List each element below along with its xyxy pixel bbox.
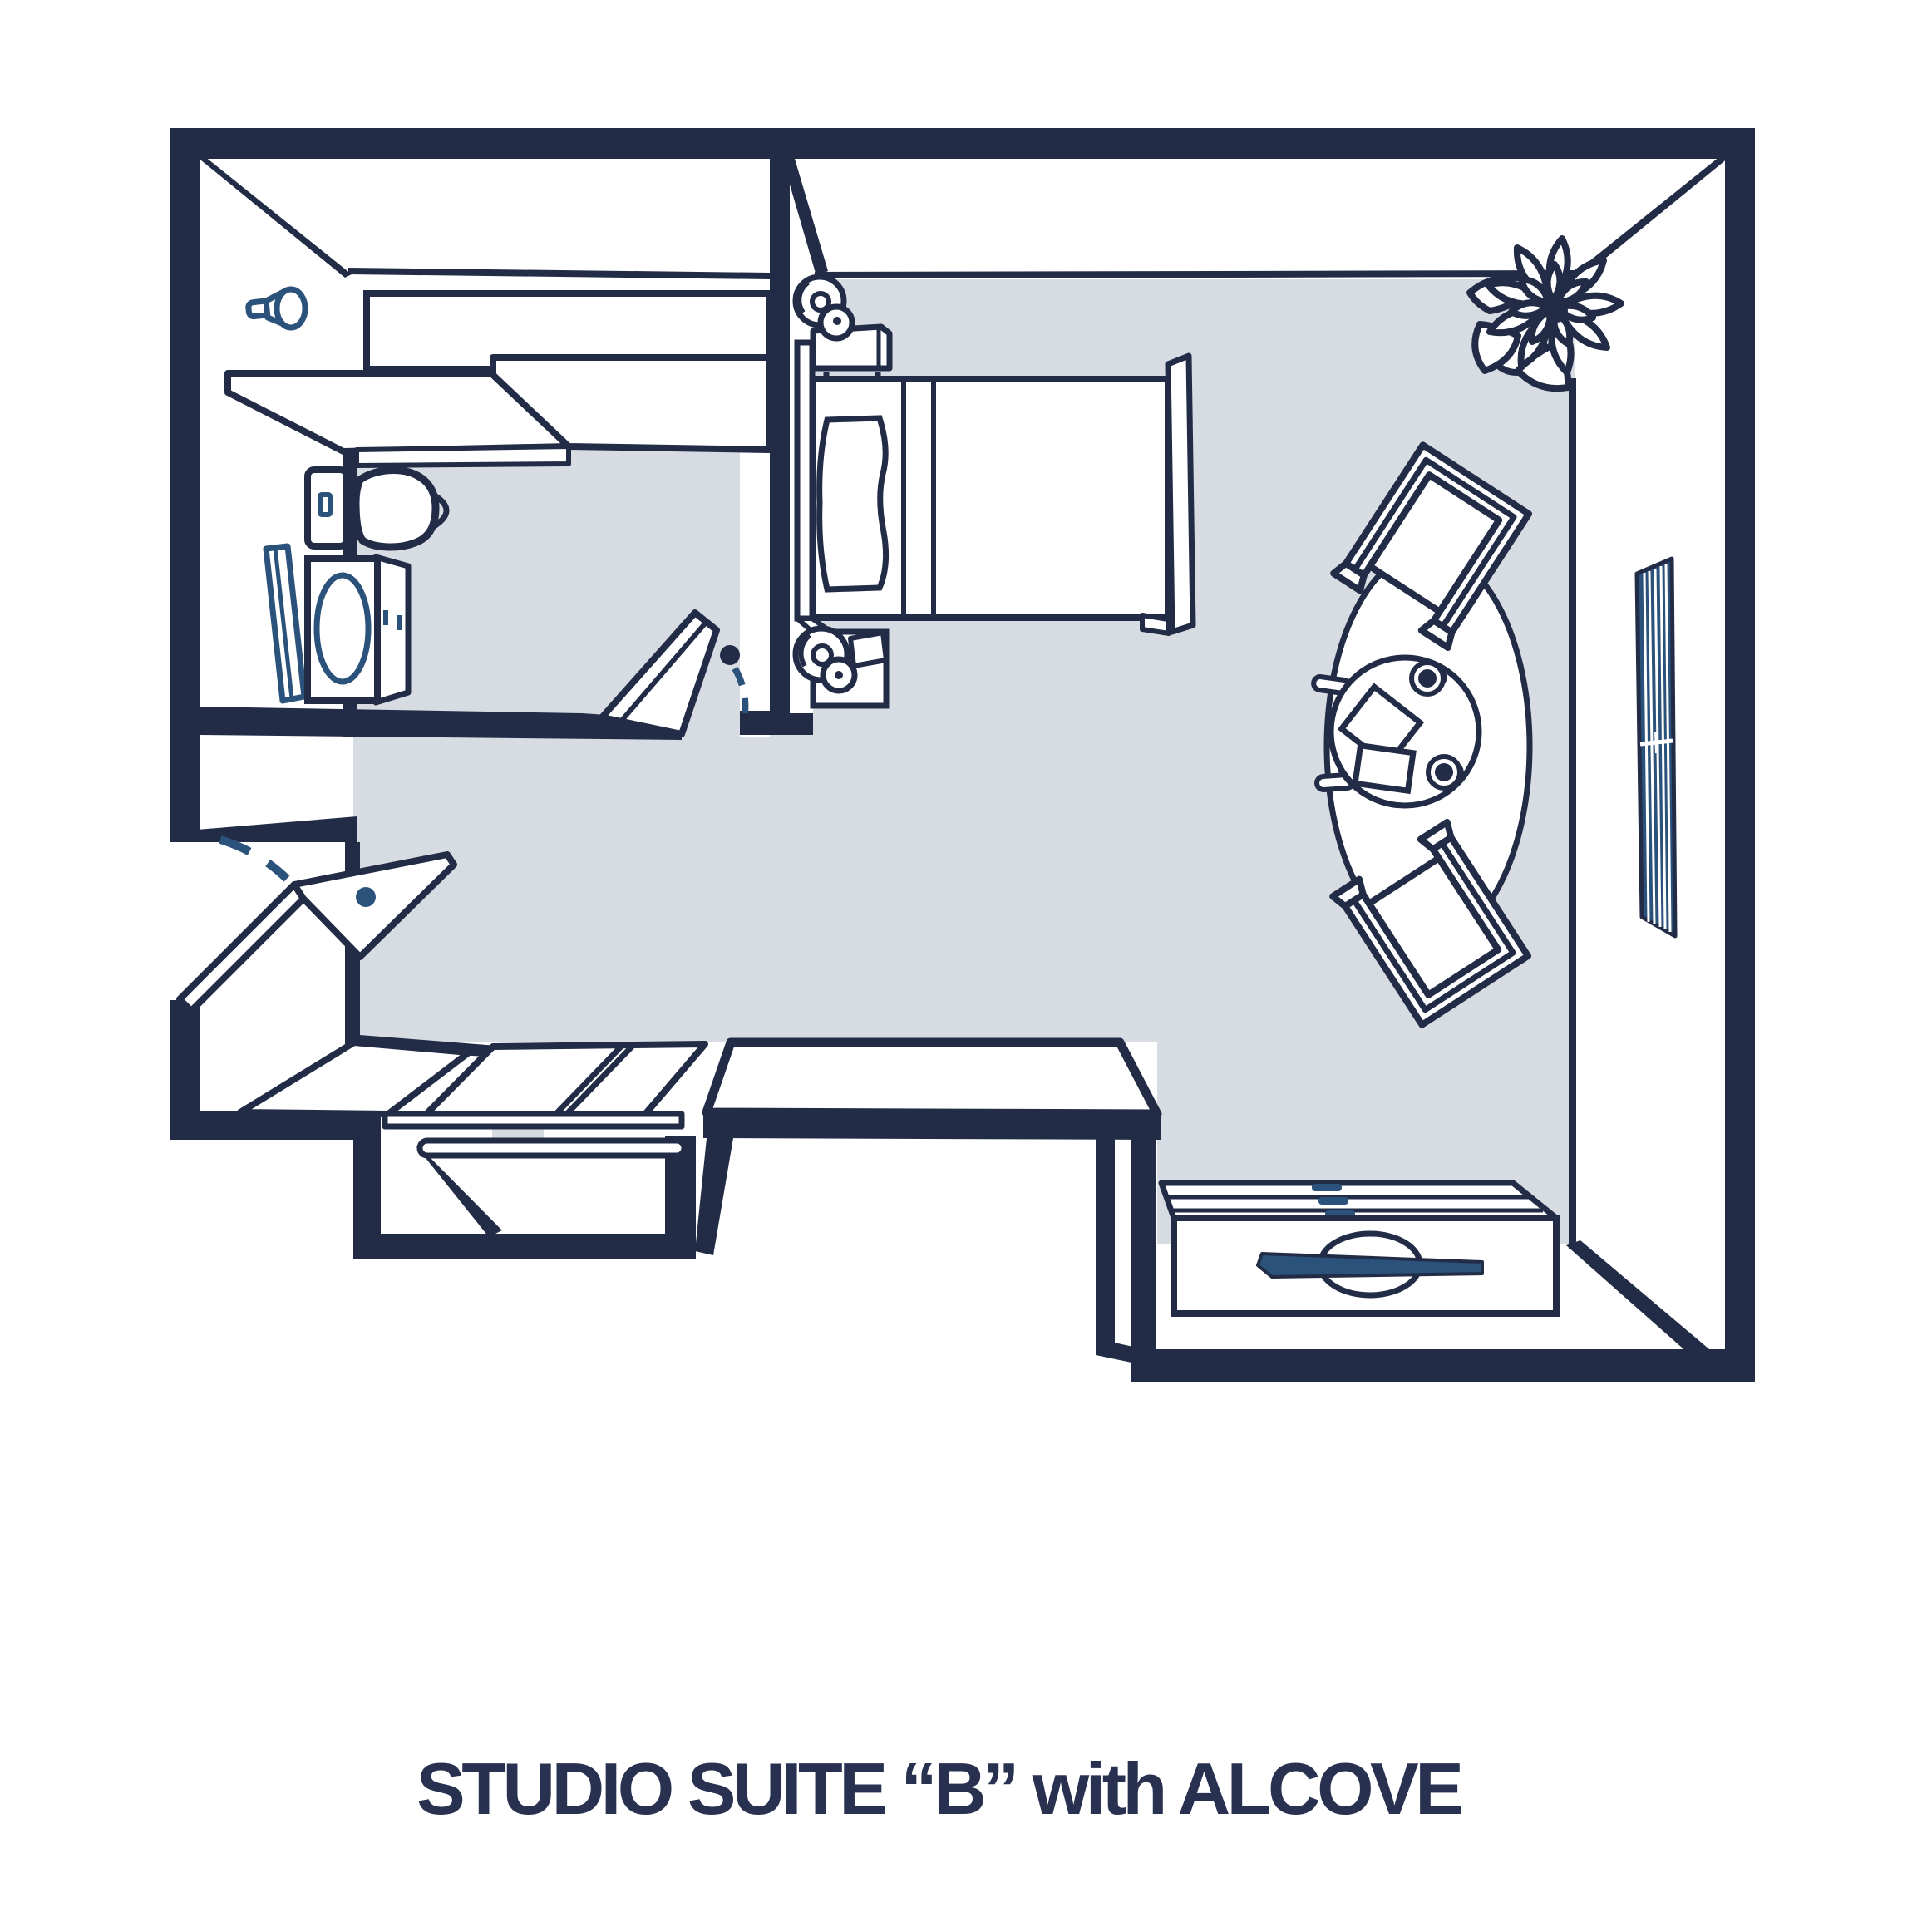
svg-text:STUDIO SUITE “B” with ALCOVE: STUDIO SUITE “B” with ALCOVE [416,1747,1466,1830]
